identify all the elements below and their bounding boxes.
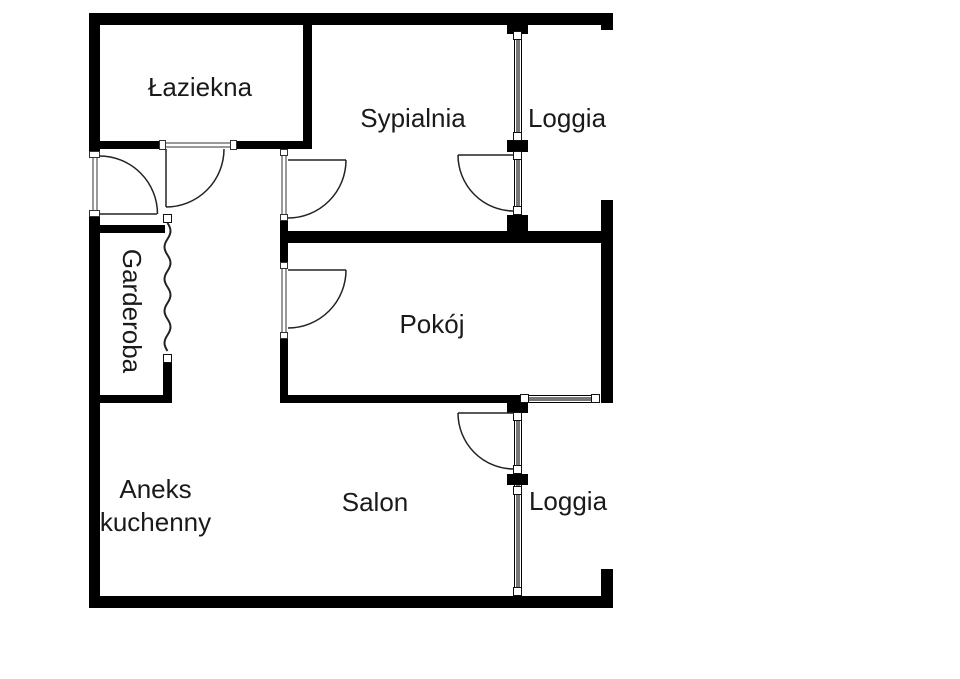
door-jamb: [280, 214, 288, 221]
room-label-bathroom: Łaziekna: [120, 71, 280, 104]
window-room-loggia: [528, 395, 592, 403]
wall-room-left-upper: [280, 243, 288, 263]
wall-left-upper: [89, 13, 100, 152]
room-label-bedroom: Sypialnia: [333, 102, 493, 135]
wall-wardrobe-top: [100, 225, 165, 233]
wall-room-left-lower: [280, 338, 288, 403]
room-label-loggia-top: Loggia: [507, 102, 627, 135]
post-wardrobe-bottom: [163, 354, 172, 363]
wall-wardrobe-bottom: [100, 395, 172, 403]
door-threshold: [165, 143, 231, 148]
door-frame-bedroom: [280, 149, 288, 221]
door-swing-balcony-salon: [458, 413, 514, 469]
door-frame-entrance: [89, 151, 100, 217]
cap-glazing: [513, 206, 522, 215]
door-swing-bathroom: [166, 149, 224, 207]
door-threshold: [282, 155, 287, 215]
wall-wardrobe-stub: [163, 362, 172, 403]
cap-window-left: [520, 394, 529, 403]
wall-bathroom-right: [303, 22, 312, 149]
door-threshold: [282, 268, 287, 333]
door-jamb: [89, 210, 100, 217]
cap-glazing: [513, 587, 522, 596]
room-label-room: Pokój: [352, 308, 512, 341]
wall-left-lower: [89, 216, 100, 608]
room-label-kitchenette: Aneks kuchenny: [93, 473, 218, 538]
door-swing-balcony-bedroom: [458, 155, 514, 211]
cap-glazing: [513, 151, 522, 160]
post-wardrobe-top: [163, 214, 172, 223]
cap-glazing: [513, 31, 522, 40]
door-swing-entrance: [100, 156, 158, 214]
block-glazing-bottom-divider: [507, 474, 528, 485]
door-frame-bathroom: [159, 140, 237, 150]
room-label-salon: Salon: [305, 486, 445, 519]
wall-top-right-stub: [601, 13, 613, 30]
wall-bathroom-bottom-left: [100, 141, 160, 149]
door-threshold: [92, 157, 97, 211]
wall-bathroom-bottom-right: [236, 141, 312, 149]
wall-room-top: [280, 231, 613, 243]
door-swing-bedroom: [288, 160, 346, 218]
wall-bottom: [89, 596, 613, 608]
cap-glazing: [513, 465, 522, 474]
room-label-loggia-bottom: Loggia: [508, 485, 628, 518]
cap-window-right: [591, 394, 600, 403]
wardrobe-curtain-line: [165, 223, 171, 351]
door-swing-room: [288, 270, 346, 328]
door-jamb: [280, 332, 288, 339]
door-frame-room: [280, 262, 288, 339]
wall-room-bottom: [280, 395, 512, 403]
cap-glazing: [513, 412, 522, 421]
door-jamb: [230, 140, 237, 150]
wall-top: [89, 13, 613, 25]
wall-room-right: [601, 200, 613, 403]
wall-loggia-bottom-right-stub: [601, 569, 613, 596]
floor-plan: Łaziekna Sypialnia Loggia Garderoba Pokó…: [0, 0, 960, 679]
room-label-wardrobe: Garderoba: [118, 241, 148, 381]
block-glazing-top-junction: [507, 215, 528, 237]
